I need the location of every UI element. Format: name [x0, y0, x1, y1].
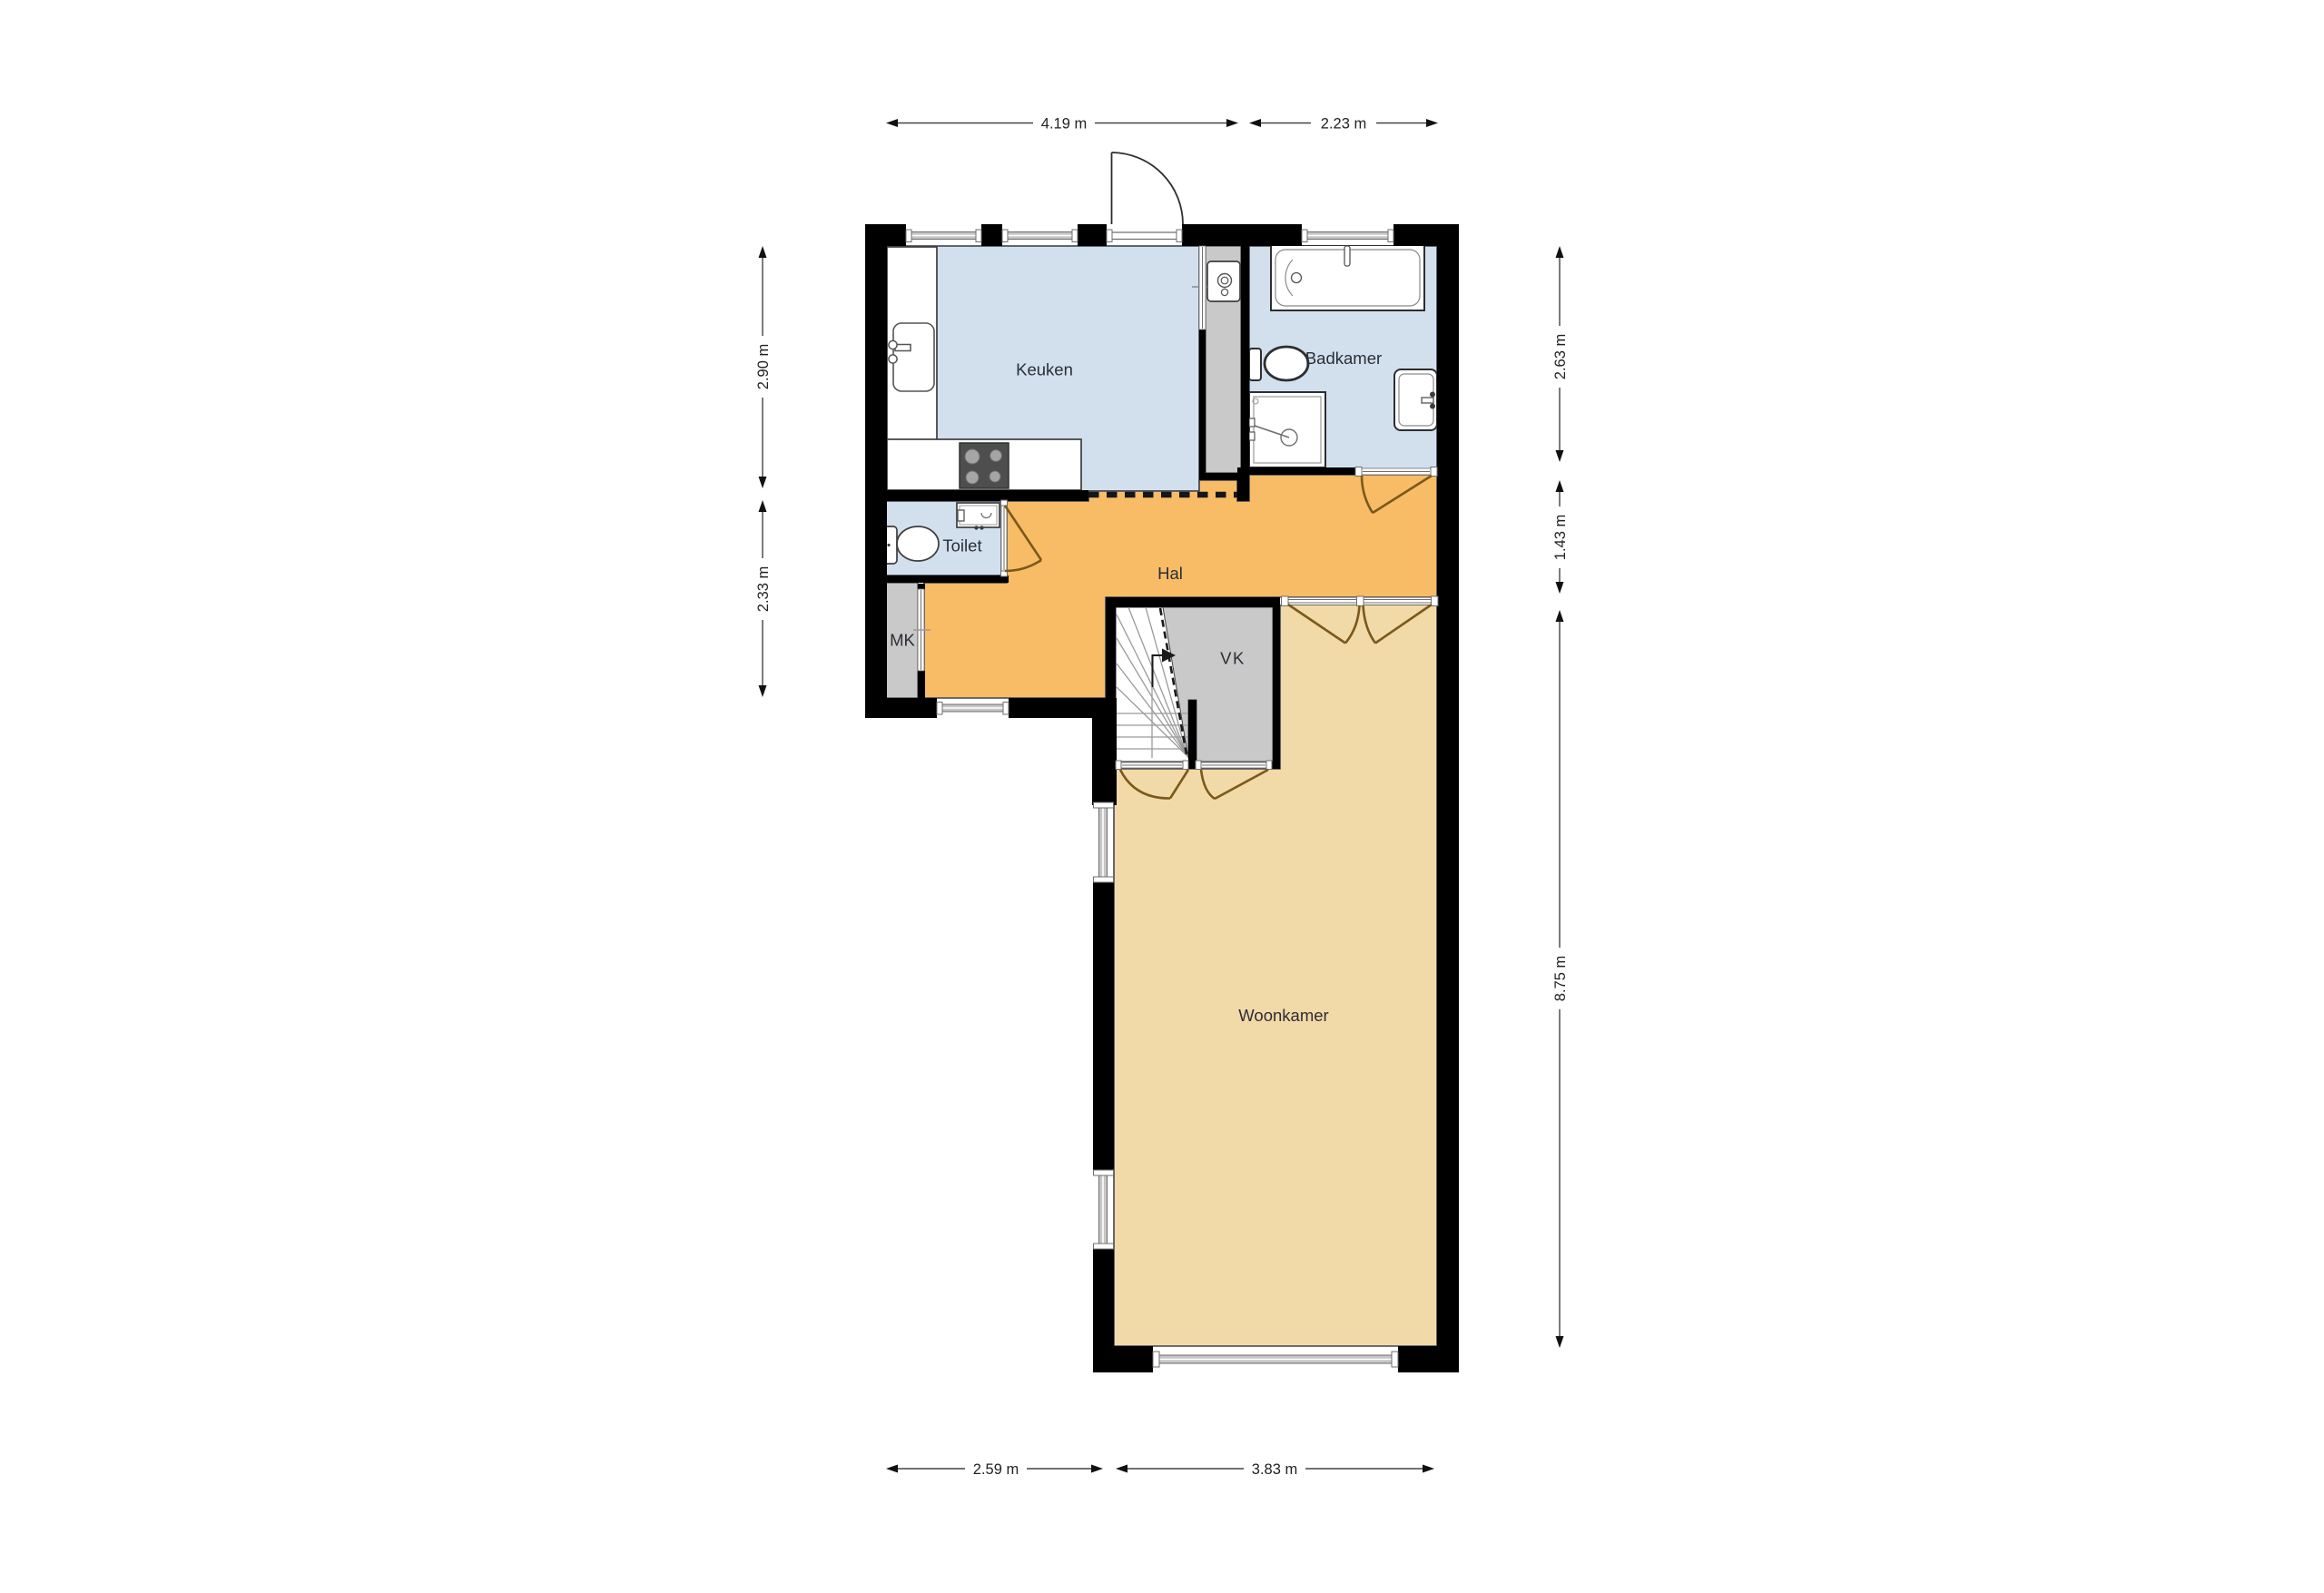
svg-text:2.63 m: 2.63 m [1552, 334, 1569, 379]
svg-text:2.23 m: 2.23 m [1321, 116, 1366, 133]
svg-text:Badkamer: Badkamer [1305, 349, 1382, 368]
svg-text:2.90 m: 2.90 m [755, 344, 772, 389]
svg-text:Toilet: Toilet [942, 536, 981, 556]
svg-text:2.59 m: 2.59 m [973, 1461, 1019, 1478]
svg-text:Woonkamer: Woonkamer [1238, 1006, 1328, 1025]
svg-text:3.83 m: 3.83 m [1252, 1461, 1297, 1478]
svg-text:2.33 m: 2.33 m [755, 566, 772, 612]
svg-text:VK: VK [1220, 649, 1246, 668]
svg-text:Keuken: Keuken [1016, 360, 1073, 379]
svg-text:8.75 m: 8.75 m [1552, 956, 1569, 1001]
svg-text:4.19 m: 4.19 m [1041, 116, 1087, 133]
svg-text:1.43 m: 1.43 m [1552, 515, 1569, 560]
svg-text:Hal: Hal [1157, 564, 1183, 583]
svg-text:MK: MK [890, 631, 915, 650]
